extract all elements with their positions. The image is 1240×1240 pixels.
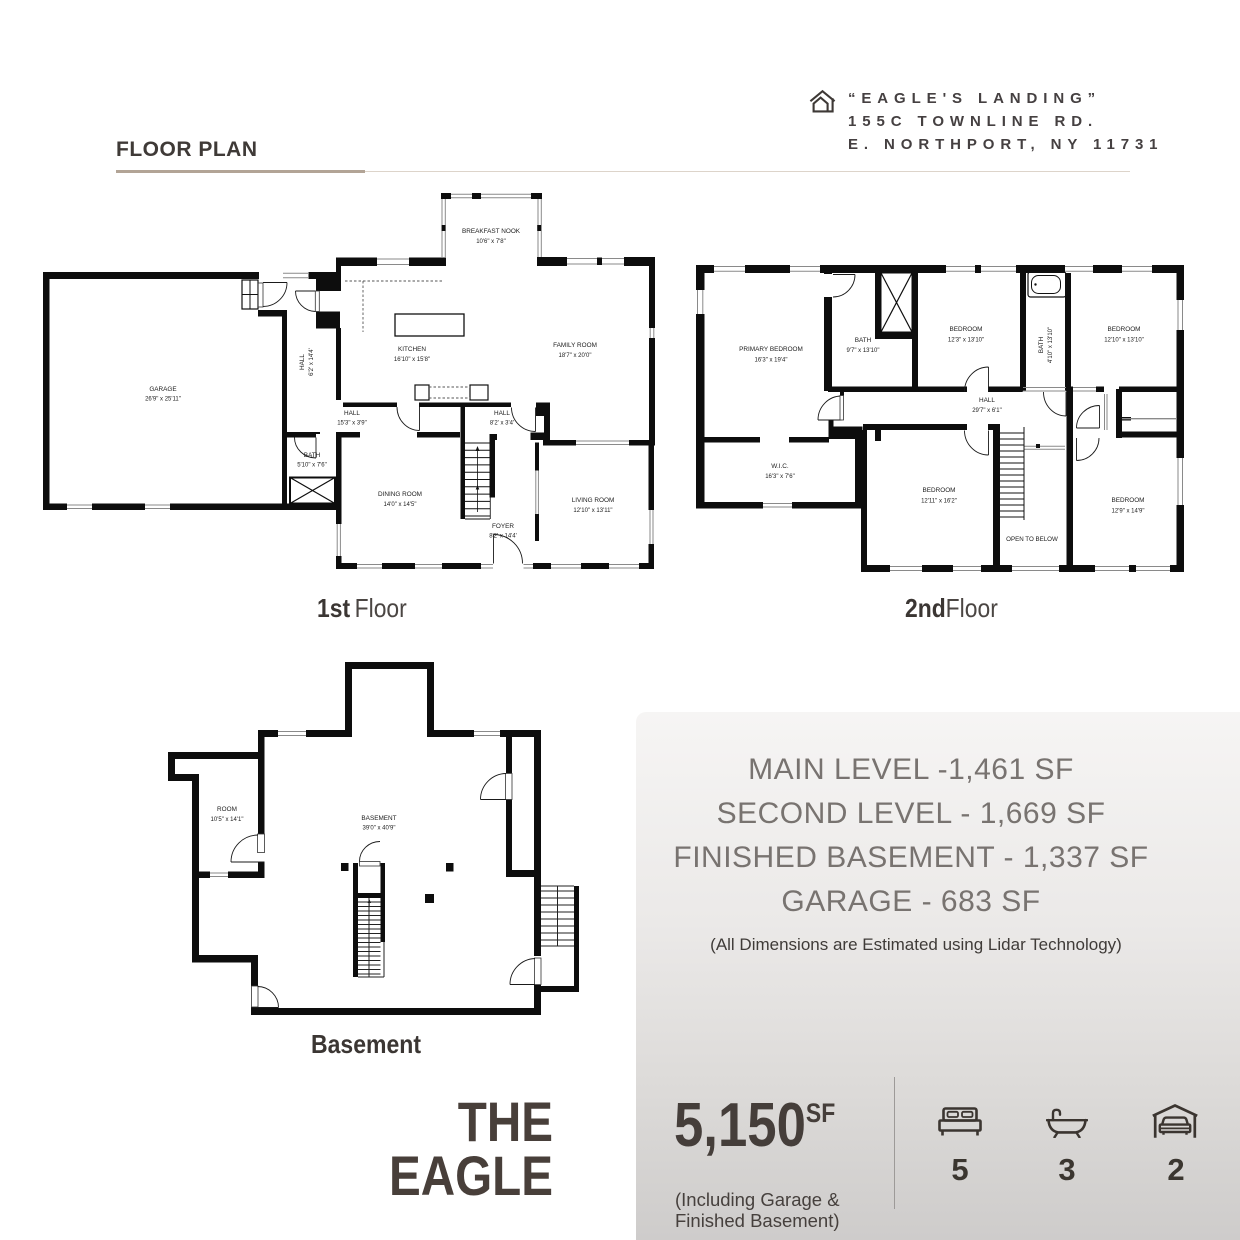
svg-text:HALL: HALL: [979, 397, 995, 404]
svg-text:DINING ROOM: DINING ROOM: [378, 491, 422, 498]
svg-text:16'3" x 7'6": 16'3" x 7'6": [765, 474, 795, 480]
svg-text:BATH: BATH: [304, 452, 321, 459]
svg-text:26'9" x 25'11": 26'9" x 25'11": [145, 397, 181, 403]
svg-text:BATH: BATH: [1038, 336, 1045, 353]
svg-text:LIVING ROOM: LIVING ROOM: [572, 497, 615, 504]
svg-text:HALL: HALL: [344, 410, 360, 417]
svg-text:5'10" x 7'6": 5'10" x 7'6": [297, 463, 327, 469]
svg-text:16'10" x 15'8": 16'10" x 15'8": [394, 357, 430, 363]
svg-text:GARAGE: GARAGE: [149, 386, 176, 393]
svg-text:BEDROOM: BEDROOM: [922, 487, 955, 494]
svg-text:18'7" x 20'0": 18'7" x 20'0": [559, 353, 592, 359]
svg-text:12'10" x 13'11": 12'10" x 13'11": [573, 508, 612, 514]
svg-text:16'3" x 19'4": 16'3" x 19'4": [755, 358, 788, 364]
svg-text:8'2' x 14'4': 8'2' x 14'4': [489, 534, 517, 540]
svg-text:9'7" x 13'10": 9'7" x 13'10": [847, 348, 880, 354]
svg-text:W.I.C.: W.I.C.: [771, 463, 789, 470]
svg-text:BASEMENT: BASEMENT: [361, 815, 396, 822]
svg-text:39'0" x 40'9": 39'0" x 40'9": [363, 826, 396, 832]
svg-text:BREAKFAST NOOK: BREAKFAST NOOK: [462, 228, 521, 235]
svg-text:8'2' x 3'4': 8'2' x 3'4': [490, 421, 514, 427]
svg-text:KITCHEN: KITCHEN: [398, 346, 426, 353]
svg-text:10'5" x 14'1": 10'5" x 14'1": [211, 817, 244, 823]
svg-text:6'2' x 14'4': 6'2' x 14'4': [309, 348, 315, 376]
svg-text:4'10" x 13'10": 4'10" x 13'10": [1048, 327, 1054, 363]
svg-text:PRIMARY BEDROOM: PRIMARY BEDROOM: [739, 346, 803, 353]
svg-text:HALL: HALL: [494, 410, 510, 417]
svg-text:29'7" x 6'1": 29'7" x 6'1": [972, 408, 1002, 414]
svg-text:12'3" x 13'10": 12'3" x 13'10": [948, 338, 984, 344]
svg-text:FOYER: FOYER: [492, 523, 514, 530]
svg-text:12'11" x 16'2": 12'11" x 16'2": [921, 499, 957, 505]
svg-text:14'0" x 14'5": 14'0" x 14'5": [384, 502, 417, 508]
svg-text:ROOM: ROOM: [217, 806, 237, 813]
svg-text:BATH: BATH: [855, 337, 872, 344]
svg-text:BEDROOM: BEDROOM: [1107, 326, 1140, 333]
svg-text:BEDROOM: BEDROOM: [949, 326, 982, 333]
svg-text:HALL: HALL: [299, 354, 306, 370]
svg-text:OPEN TO BELOW: OPEN TO BELOW: [1006, 536, 1058, 543]
svg-text:12'10" x 13'10": 12'10" x 13'10": [1104, 338, 1144, 344]
svg-text:10'6" x 7'8": 10'6" x 7'8": [476, 239, 506, 245]
svg-text:FAMILY ROOM: FAMILY ROOM: [553, 342, 597, 349]
svg-text:12'9" x 14'9": 12'9" x 14'9": [1112, 509, 1145, 515]
svg-text:15'3" x 3'9": 15'3" x 3'9": [337, 421, 367, 427]
svg-text:BEDROOM: BEDROOM: [1111, 497, 1144, 504]
